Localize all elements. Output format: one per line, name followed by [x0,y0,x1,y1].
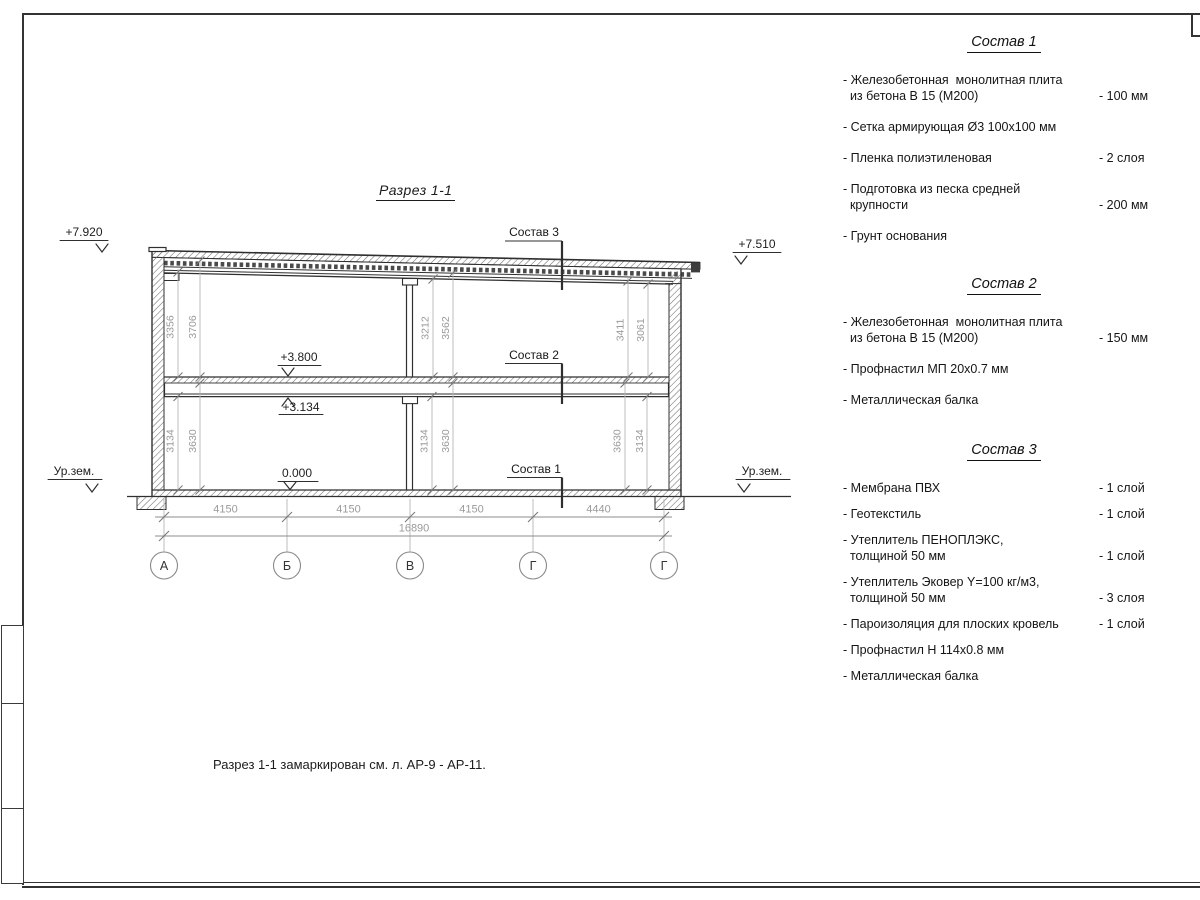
dim-lower-right-1: 3630 [612,429,624,453]
dim-upper-mid-2: 3562 [440,316,452,340]
composition-leaders: Состав 3 Состав 2 Состав 1 [505,225,562,508]
elevation-roof-left: +7.920 [65,225,102,239]
frame-bottom-line [22,882,1200,888]
dim-bay-2: 4150 [336,504,360,516]
column-axis-v [403,279,418,491]
composition-2-heading: Состав 2 [843,276,1165,292]
composition-list-1: Состав 1 - Железобетонная монолитная пли… [843,34,1165,244]
axis-g2: Г [661,559,668,573]
composition-1-heading: Состав 1 [843,34,1165,50]
leader-label-sostav3: Состав 3 [509,225,559,239]
frame-corner-tab [1191,13,1200,37]
dim-upper-right-1: 3411 [615,319,627,342]
floor-slab-level2 [164,377,669,397]
list-item: - Железобетонная монолитная плита из бет… [843,72,1165,104]
dim-bay-3: 4150 [459,504,483,516]
drawing-sheet: Разрез 1-1 [0,0,1200,900]
composition-list-3: Состав 3 - Мембрана ПВХ- 1 слой - Геотек… [843,442,1165,684]
dim-lower-left-2: 3630 [187,429,199,453]
list-item: - Металлическая балка [843,668,1165,684]
list-item: - Профнастил Н 114x0.8 мм [843,642,1165,658]
roof-assembly [152,251,700,285]
lower-dim-lines: 3134 3630 3134 3630 3630 3134 [165,379,652,495]
composition-3-heading: Состав 3 [843,442,1165,458]
dim-bay-4: 4440 [586,504,610,516]
list-item: - Сетка армирующая Ø3 100x100 мм [843,119,1165,135]
list-item: - Мембрана ПВХ- 1 слой [843,480,1165,496]
axis-g1: Г [530,559,537,573]
leader-label-sostav2: Состав 2 [509,348,559,362]
dim-lower-right-2: 3134 [634,429,646,453]
list-item: - Металлическая балка [843,392,1165,408]
list-item: - Утеплитель ПЕНОПЛЭКС, толщиной 50 мм- … [843,532,1165,564]
dim-lower-mid-2: 3630 [440,429,452,453]
frame-edge-box [1,808,24,884]
dim-upper-right-2: 3061 [635,318,647,342]
reference-note: Разрез 1-1 замаркирован см. л. АР-9 - АР… [213,757,486,772]
dim-bay-1: 4150 [213,504,237,516]
list-item: - Железобетонная монолитная плита из бет… [843,314,1165,346]
list-item: - Геотекстиль- 1 слой [843,506,1165,522]
list-item: - Подготовка из песка средней крупности-… [843,181,1165,213]
composition-list-2: Состав 2 - Железобетонная монолитная пли… [843,276,1165,408]
list-item: - Профнастил МП 20x0.7 мм [843,361,1165,377]
dim-upper-left-1: 3356 [165,315,177,339]
dim-upper-mid-1: 3212 [420,316,432,340]
ground-level-left: Ур.зем. [54,464,95,478]
dim-total: 16890 [399,523,430,535]
list-item: - Утеплитель Эковер Y=100 кг/м3, толщино… [843,574,1165,606]
left-wall [149,248,179,498]
elevation-beam: +3.134 [282,400,319,414]
dim-upper-left-2: 3706 [187,315,199,339]
frame-edge-box [1,625,24,705]
bottom-dims: 4150 4150 4150 4440 16890 [155,499,672,552]
list-item: - Пленка полиэтиленовая- 2 слоя [843,150,1165,166]
dim-lower-left-1: 3134 [165,429,177,453]
ground-level-right: Ур.зем. [742,464,783,478]
axis-b: Б [283,559,291,573]
elevation-slab: +3.800 [280,350,317,364]
list-item: - Пароизоляция для плоских кровель- 1 сл… [843,616,1165,632]
dim-lower-mid-1: 3134 [419,429,431,453]
axis-a: А [160,559,169,573]
axis-bubbles: А Б В Г Г [151,552,678,579]
elevation-roof-right: +7.510 [738,237,775,251]
frame-edge-box [1,703,24,810]
list-item: - Грунт основания [843,228,1165,244]
section-drawing: 3356 3706 3212 3562 3411 3061 3134 3630 … [0,0,820,620]
elevation-floor: 0.000 [282,466,312,480]
axis-v: В [406,559,414,573]
leader-label-sostav1: Состав 1 [511,462,561,476]
